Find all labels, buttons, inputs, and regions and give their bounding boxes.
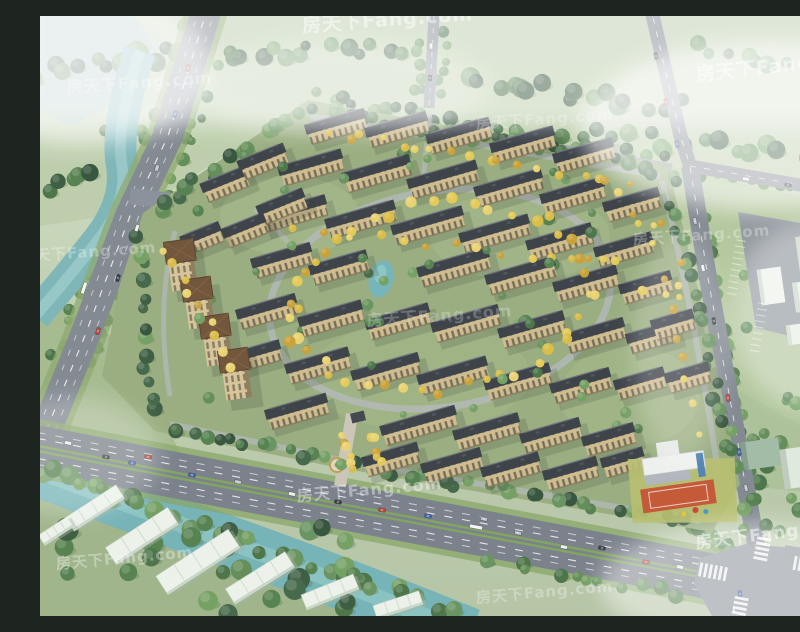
render-scene: 房天下Fang.com房天下Fang.com房天下Fang.com房天下Fang… [40, 16, 800, 616]
aerial-render-image: 房天下Fang.com房天下Fang.com房天下Fang.com房天下Fang… [40, 16, 800, 616]
